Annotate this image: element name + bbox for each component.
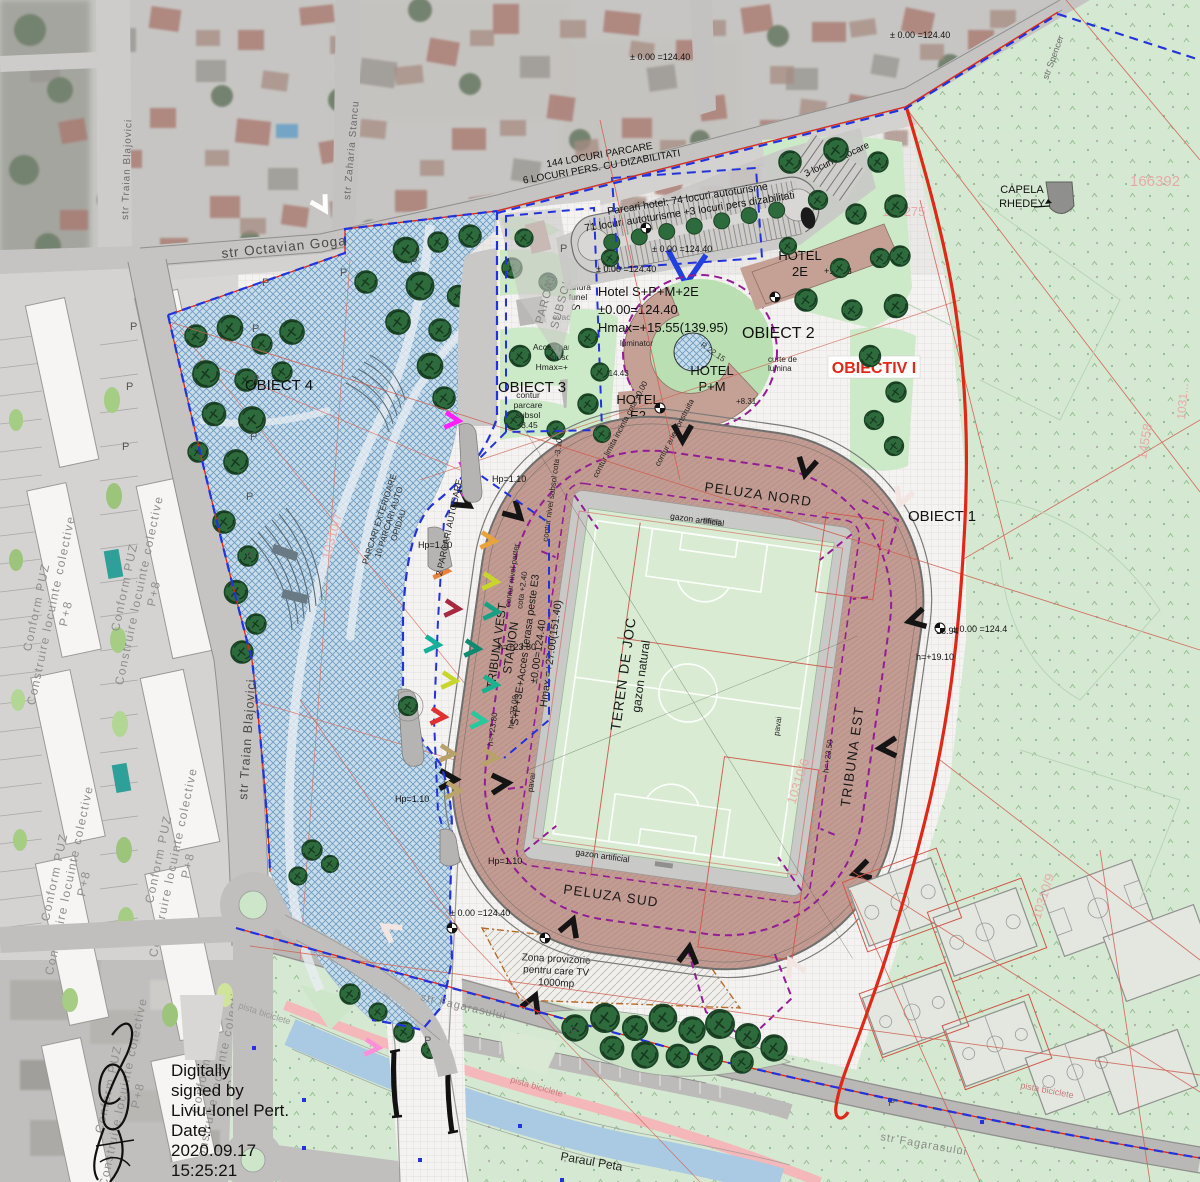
svg-text:-3.45: -3.45	[518, 420, 538, 430]
svg-text:Hp=1.10: Hp=1.10	[395, 794, 429, 804]
svg-text:P: P	[262, 277, 269, 289]
svg-text:2E: 2E	[792, 264, 808, 279]
svg-text:h=+23.80: h=+23.80	[498, 642, 536, 652]
svg-text:2020.09.17: 2020.09.17	[171, 1141, 256, 1160]
svg-text:P: P	[252, 323, 259, 335]
svg-text:P+M: P+M	[698, 379, 725, 394]
svg-text:lumina: lumina	[768, 364, 792, 373]
svg-text:± 0.00 =124.40: ± 0.00 =124.40	[450, 908, 510, 918]
svg-text:P: P	[570, 1025, 577, 1037]
svg-text:P: P	[424, 1035, 431, 1047]
svg-text:15:25:21: 15:25:21	[171, 1161, 237, 1180]
svg-text:subsol: subsol	[516, 410, 541, 420]
svg-text:± 0.00 =124.40: ± 0.00 =124.40	[652, 244, 712, 254]
svg-text:Hp=1.10: Hp=1.10	[492, 474, 526, 484]
svg-text:Hp=1.10: Hp=1.10	[488, 856, 522, 866]
svg-text:± 0.00 =124.40: ± 0.00 =124.40	[630, 52, 690, 62]
svg-text:± 0.00 =124.40: ± 0.00 =124.40	[890, 30, 950, 40]
svg-text:P: P	[340, 267, 347, 279]
svg-text:P: P	[122, 441, 129, 453]
svg-text:P: P	[246, 551, 253, 563]
svg-text:Hotel S+P+M+2E: Hotel S+P+M+2E	[598, 284, 699, 299]
svg-text:P: P	[252, 373, 259, 385]
svg-text:parcare: parcare	[514, 400, 543, 410]
svg-text:Digitally: Digitally	[171, 1061, 231, 1080]
svg-text:h=+19.10: h=+19.10	[916, 652, 954, 662]
svg-text:Liviu-Ionel Pert.: Liviu-Ionel Pert.	[171, 1101, 289, 1120]
svg-text:OBIECT 3: OBIECT 3	[498, 379, 566, 396]
svg-text:±0.00=124.40: ±0.00=124.40	[598, 302, 678, 317]
svg-text:± 0.00 =124.4: ± 0.00 =124.4	[952, 624, 1007, 634]
svg-text:OBIECT 2: OBIECT 2	[742, 325, 815, 342]
svg-text:Hmax=+15.55(139.95): Hmax=+15.55(139.95)	[598, 320, 728, 335]
svg-text:signed by: signed by	[171, 1081, 244, 1100]
svg-text:P: P	[246, 491, 253, 503]
svg-text:Hp=1.10: Hp=1.10	[418, 540, 452, 550]
svg-text:166392: 166392	[1130, 173, 1180, 190]
svg-text:P: P	[130, 321, 137, 333]
svg-text:± 0.00 =124.40: ± 0.00 =124.40	[596, 264, 656, 274]
svg-text:luminator: luminator	[620, 339, 653, 348]
svg-text:P: P	[250, 431, 257, 443]
svg-text:RHEDEY: RHEDEY	[999, 198, 1046, 210]
svg-text:HOTEL: HOTEL	[690, 363, 733, 378]
svg-text:P: P	[126, 381, 133, 393]
svg-text:Date:: Date:	[171, 1121, 212, 1140]
svg-text:OBIECT 1: OBIECT 1	[908, 508, 976, 525]
svg-text:CAPELA: CAPELA	[1000, 184, 1044, 196]
svg-text:P: P	[560, 243, 567, 255]
svg-text:+8.31: +8.31	[736, 397, 757, 406]
svg-text:P: P	[410, 256, 417, 268]
